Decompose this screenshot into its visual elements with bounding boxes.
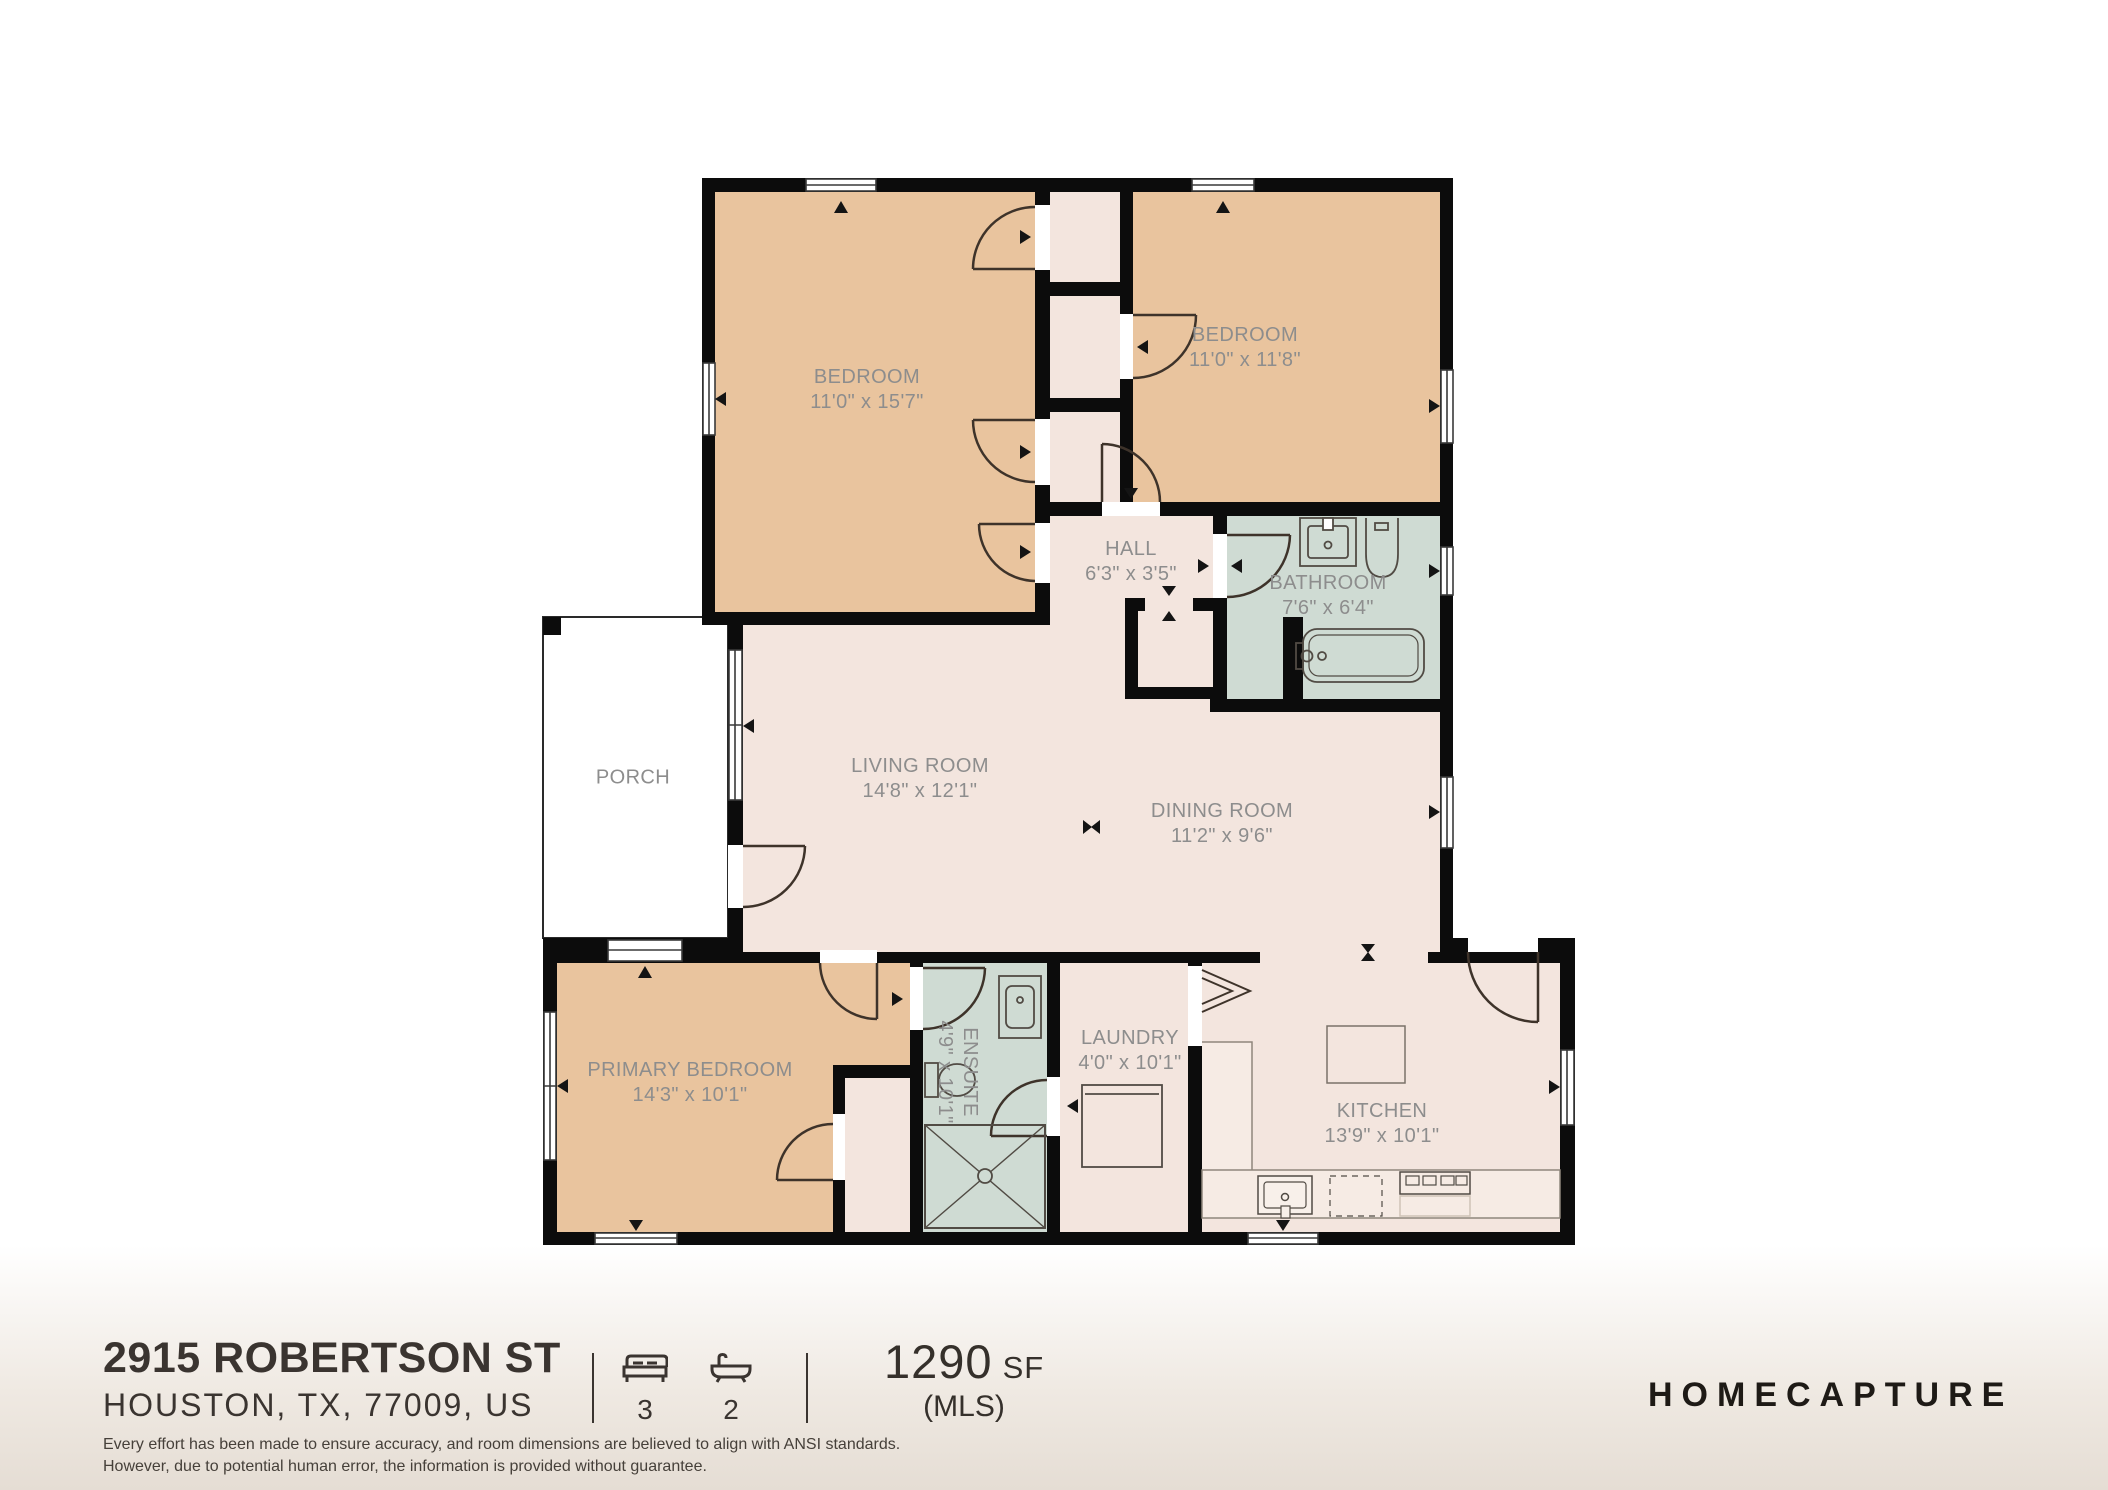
room-name: BATHROOM [1269, 571, 1386, 596]
room-dims: 11'2" x 9'6" [1151, 824, 1293, 849]
room-dims: 11'0" x 11'8" [1189, 348, 1301, 373]
room-dims: 11'0" x 15'7" [810, 390, 923, 415]
room-label-kitchen: KITCHEN 13'9" x 10'1" [1325, 1099, 1440, 1149]
room-name: LIVING ROOM [851, 754, 989, 779]
room-dims: 14'8" x 12'1" [851, 779, 989, 804]
room-name: HALL [1085, 537, 1177, 562]
room-name: BEDROOM [810, 365, 923, 390]
room-label-bathroom: BATHROOM 7'6" x 6'4" [1269, 571, 1386, 621]
room-name: PORCH [596, 766, 670, 791]
room-name: LAUNDRY [1078, 1026, 1181, 1051]
room-name: ENSUITE [957, 1020, 982, 1123]
room-dims: 4'0" x 10'1" [1078, 1051, 1181, 1076]
room-label-living-room: LIVING ROOM 14'8" x 12'1" [851, 754, 989, 804]
room-dims: 7'6" x 6'4" [1269, 596, 1386, 621]
room-label-hall: HALL 6'3" x 3'5" [1085, 537, 1177, 587]
room-dims: 14'3" x 10'1" [587, 1083, 792, 1108]
room-label-ensuite: ENSUITE 4'9" x 10'1" [932, 1020, 982, 1123]
floor-plan-page: BEDROOM 11'0" x 15'7" BEDROOM 11'0" x 11… [0, 0, 2108, 1490]
room-name: KITCHEN [1325, 1099, 1440, 1124]
room-label-primary-bedroom: PRIMARY BEDROOM 14'3" x 10'1" [587, 1058, 792, 1108]
floor-plan-drawing [0, 0, 2108, 1320]
room-name: DINING ROOM [1151, 799, 1293, 824]
room-label-porch: PORCH [596, 766, 670, 791]
room-dims: 13'9" x 10'1" [1325, 1124, 1440, 1149]
room-dims: 6'3" x 3'5" [1085, 562, 1177, 587]
room-label-bedroom-1: BEDROOM 11'0" x 15'7" [810, 365, 923, 415]
room-label-bedroom-2: BEDROOM 11'0" x 11'8" [1189, 323, 1301, 373]
room-dims: 4'9" x 10'1" [932, 1020, 957, 1123]
room-label-dining-room: DINING ROOM 11'2" x 9'6" [1151, 799, 1293, 849]
room-name: PRIMARY BEDROOM [587, 1058, 792, 1083]
room-label-laundry: LAUNDRY 4'0" x 10'1" [1078, 1026, 1181, 1076]
room-name: BEDROOM [1189, 323, 1301, 348]
